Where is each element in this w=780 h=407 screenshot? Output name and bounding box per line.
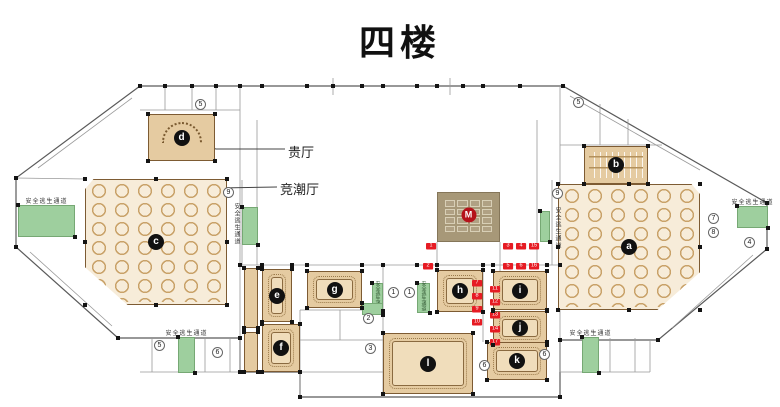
column-dot [14,245,18,249]
column-dot [163,84,167,88]
escape-bar-label: 安全逃生通道 [25,196,67,205]
column-dot [260,263,264,267]
column-dot [176,335,180,339]
room-i: i [493,271,547,310]
room-e: e [262,269,292,322]
column-dot [481,268,485,272]
column-dot [238,336,242,340]
room-label-c: c [148,234,164,250]
column-dot [381,263,385,267]
escape-bar-label: 安全逃生通道 [165,328,207,337]
circled-number-marker: 7 [708,213,719,224]
column-dot [16,203,20,207]
room-k: k [487,342,547,380]
column-dot [238,84,242,88]
column-dot [193,371,197,375]
room-label-a: a [621,239,637,255]
circled-number-marker: 5 [195,99,206,110]
column-dot [242,266,246,270]
escape-bar [18,205,75,237]
circled-number-marker: 8 [708,227,719,238]
column-dot [491,263,495,267]
column-dot [256,266,260,270]
column-dot [765,247,769,251]
circled-number-marker: 9 [223,187,234,198]
circled-number-marker: 9 [552,188,563,199]
circled-number-marker: 2 [363,313,374,324]
room-label-k: k [509,353,525,369]
route-number-marker: 2 [423,263,433,269]
column-dot [481,263,485,267]
route-number-marker: 5 [503,263,513,269]
column-dot [213,159,217,163]
circled-number-marker: 4 [744,237,755,248]
column-dot [260,267,264,271]
room-label-f: f [273,340,289,356]
column-dot [305,84,309,88]
column-dot [298,322,302,326]
circled-number-marker: 5 [573,97,584,108]
column-dot [558,338,562,342]
column-dot [646,182,650,186]
route-number-marker: 1 [426,243,436,249]
column-dot [597,371,601,375]
route-number-marker: 7 [472,280,482,286]
column-dot [491,309,495,313]
room-b: b [584,146,648,184]
column-dot [260,370,264,374]
column-dot [545,263,549,267]
column-dot [14,176,18,180]
column-dot [415,84,419,88]
column-dot [381,309,385,313]
column-dot [582,144,586,148]
column-dot [556,308,560,312]
column-dot [491,343,495,347]
column-dot [461,84,465,88]
column-dot [435,310,439,314]
room-l: l [383,333,473,394]
escape-bar-label: 安全逃生通道 [421,281,428,311]
page-title: 四楼 [320,14,480,66]
column-dot [491,269,495,273]
circled-number-marker: 6 [479,360,490,371]
column-dot [298,395,302,399]
column-dot [242,370,246,374]
column-dot [154,177,158,181]
column-dot [256,243,260,247]
column-dot [83,303,87,307]
column-dot [548,240,552,244]
column-dot [256,326,260,330]
column-dot [214,84,218,88]
room-g: g [307,271,362,308]
route-number-marker: 15 [529,243,539,249]
column-dot [545,269,549,273]
label-vip-hall: 贵厅 [288,142,314,161]
room-m: M [437,192,500,242]
label-jingchao-hall: 竞潮厅 [280,179,319,198]
column-dot [545,309,549,313]
route-number-marker: 4 [516,243,526,249]
column-dot [360,269,364,273]
column-dot [290,320,294,324]
room-label-j: j [512,320,528,336]
column-dot [481,310,485,314]
column-dot [538,209,542,213]
column-dot [73,235,77,239]
column-dot [381,84,385,88]
escape-bar [178,337,195,373]
column-dot [471,331,475,335]
column-dot [735,204,739,208]
room-d: d [148,114,215,161]
room-service-bottom [244,332,258,372]
column-dot [415,281,419,285]
escape-bar [582,337,599,373]
column-dot [242,326,246,330]
column-dot [83,240,87,244]
circled-number-marker: 6 [539,349,550,360]
route-number-marker: 13 [490,312,500,318]
column-dot [256,370,260,374]
room-label-i: i [512,283,528,299]
column-dot [225,177,229,181]
column-dot [360,301,364,305]
column-dot [190,84,194,88]
column-dot [256,330,260,334]
escape-bar-label: 安全逃生通道 [569,328,611,337]
column-dot [146,112,150,116]
room-label-l: l [420,356,436,372]
column-dot [582,182,586,186]
column-dot [146,159,150,163]
room-label-e: e [269,288,285,304]
column-dot [471,392,475,396]
route-number-marker: 11 [490,286,500,292]
column-dot [83,177,87,181]
column-dot [766,226,770,230]
column-dot [360,263,364,267]
route-number-marker: 6 [516,263,526,269]
column-dot [518,84,522,88]
column-dot [558,263,562,267]
column-dot [558,395,562,399]
column-dot [240,205,244,209]
route-number-marker: 3 [503,243,513,249]
column-dot [435,263,439,267]
column-dot [580,335,584,339]
column-dot [154,303,158,307]
route-number-marker: 16 [529,263,539,269]
column-dot [290,267,294,271]
column-dot [260,322,264,326]
floor-plan: 四楼 贵厅 竞潮厅 abcdefghijkl 安全逃生通道安全逃生通道安全逃生通… [0,0,780,407]
column-dot [481,84,485,88]
column-dot [435,84,439,88]
escape-bar-label: 安全逃生通道 [553,207,562,249]
room-label-b: b [608,157,624,173]
room-f: f [262,324,300,372]
circled-number-marker: 3 [365,343,376,354]
column-dot [627,308,631,312]
column-dot [305,306,309,310]
column-dot [116,336,120,340]
column-dot [138,84,142,88]
column-dot [545,340,549,344]
column-dot [556,245,560,249]
column-dot [290,263,294,267]
escape-bar [242,207,258,245]
room-m-label: M [461,208,476,223]
column-dot [370,281,374,285]
column-dot [225,240,229,244]
column-dot [545,378,549,382]
column-dot [415,263,419,267]
room-label-h: h [452,283,468,299]
route-number-marker: 12 [490,299,500,305]
circled-number-marker: 6 [212,347,223,358]
escape-bar [737,206,768,228]
column-dot [698,182,702,186]
route-number-marker: 8 [472,293,482,299]
route-number-marker: 10 [472,319,482,325]
circled-number-marker: 1 [404,287,415,298]
column-dot [556,182,560,186]
column-dot [238,263,242,267]
route-number-marker: 14 [490,326,500,332]
column-dot [331,84,335,88]
column-dot [360,306,364,310]
column-dot [485,340,489,344]
room-j: j [493,311,547,345]
escape-bar-label: 安全逃生通道 [232,203,241,245]
column-dot [238,370,242,374]
column-dot [305,263,309,267]
room-label-g: g [327,282,343,298]
column-dot [428,311,432,315]
column-dot [260,84,264,88]
column-dot [545,343,549,347]
column-dot [381,392,385,396]
column-dot [656,338,660,342]
room-service-top [244,268,258,328]
column-dot [381,331,385,335]
column-dot [485,378,489,382]
circled-number-marker: 1 [388,287,399,298]
column-dot [225,303,229,307]
circled-number-marker: 5 [154,340,165,351]
column-dot [298,370,302,374]
column-dot [360,84,364,88]
column-dot [698,308,702,312]
column-dot [627,182,631,186]
column-dot [765,201,769,205]
column-dot [561,84,565,88]
column-dot [305,269,309,273]
column-dot [435,268,439,272]
column-dot [698,245,702,249]
column-dot [646,144,650,148]
column-dot [381,313,385,317]
escape-bar [540,211,550,242]
column-dot [242,330,246,334]
room-label-d: d [174,130,190,146]
column-dot [213,112,217,116]
